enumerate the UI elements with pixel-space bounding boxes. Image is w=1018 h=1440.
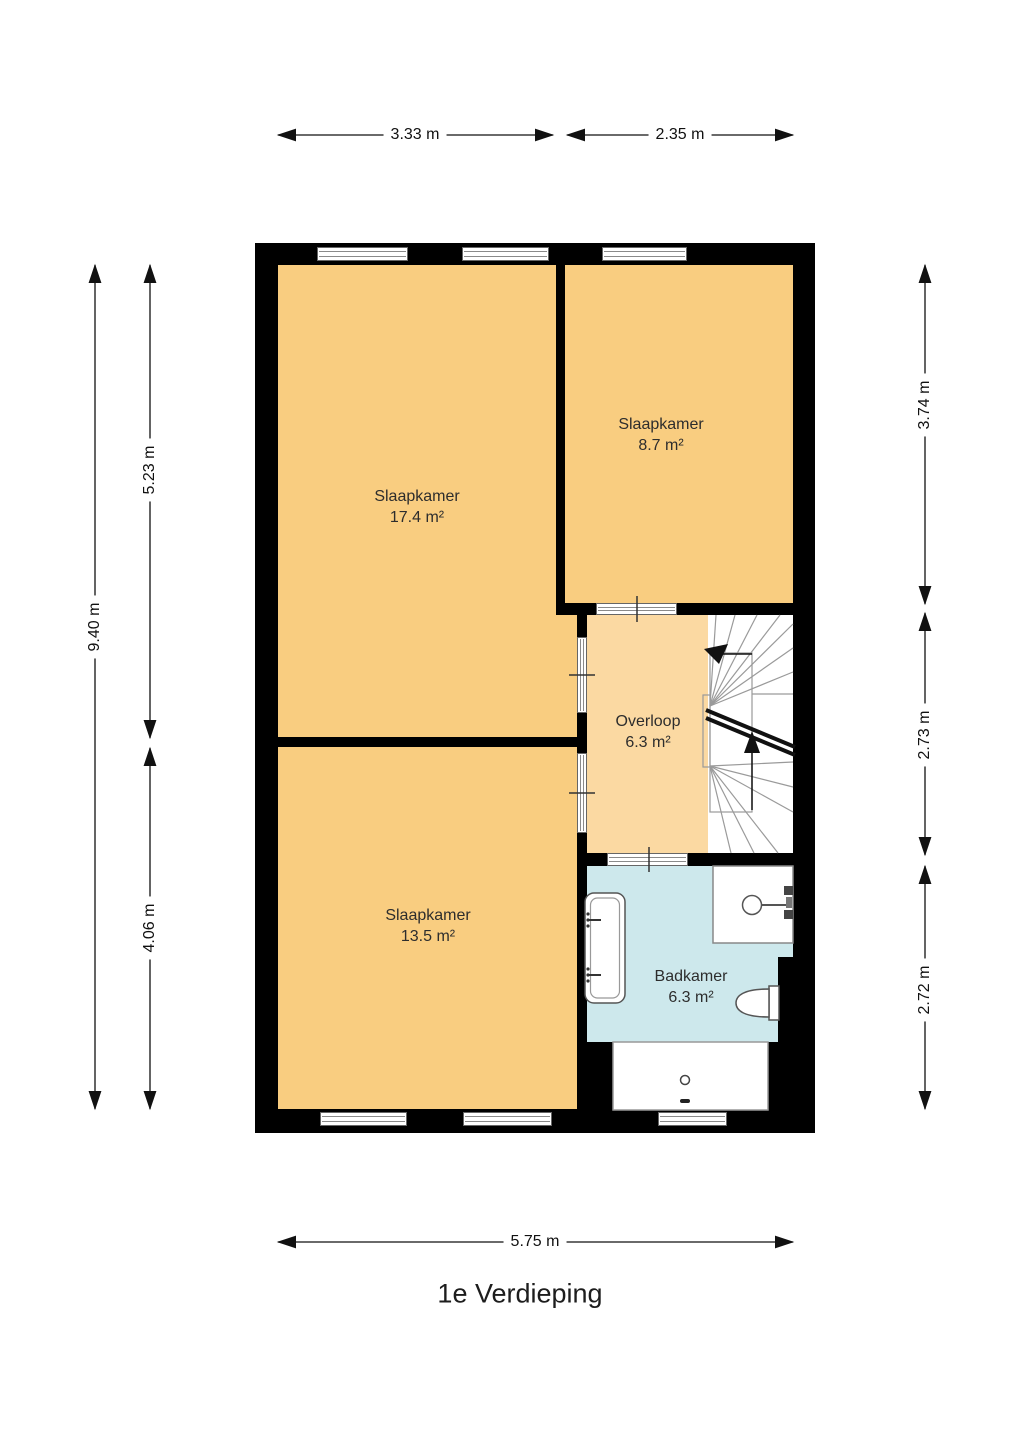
bathtub-faucet-icon xyxy=(680,1099,690,1103)
shower-drain-icon xyxy=(743,896,762,915)
room-label-bathroom: Badkamer 6.3 m² xyxy=(655,966,728,1008)
dimension-right-middle: 2.73 m xyxy=(916,704,934,767)
toilet xyxy=(736,986,779,1020)
room-label-bedroom-large: Slaapkamer 17.4 m² xyxy=(374,486,459,528)
room-name: Slaapkamer xyxy=(374,486,459,507)
dimension-top-right: 2.35 m xyxy=(649,126,712,144)
bathtub-drain-icon xyxy=(681,1076,690,1085)
dimension-top-left: 3.33 m xyxy=(384,126,447,144)
plan-annotations xyxy=(0,0,1018,1440)
room-name: Slaapkamer xyxy=(385,905,470,926)
room-name: Badkamer xyxy=(655,966,728,987)
dimension-right-lower: 2.72 m xyxy=(916,959,934,1022)
page-title: 1e Verdieping xyxy=(437,1279,602,1310)
dimension-left-outer: 9.40 m xyxy=(86,596,104,659)
room-area: 8.7 m² xyxy=(618,435,703,456)
room-area: 6.3 m² xyxy=(655,987,728,1008)
dimension-lines xyxy=(95,135,925,1242)
stairs-left-strip xyxy=(703,695,710,767)
staircase xyxy=(703,615,795,853)
shower-tap-icon xyxy=(784,886,793,895)
room-label-landing: Overloop 6.3 m² xyxy=(616,711,681,753)
room-area: 6.3 m² xyxy=(616,732,681,753)
double-washbasin xyxy=(585,893,625,1003)
room-label-bedroom-bottom: Slaapkamer 13.5 m² xyxy=(385,905,470,947)
dimension-bottom: 5.75 m xyxy=(504,1233,567,1251)
shower xyxy=(713,866,793,943)
room-area: 17.4 m² xyxy=(374,507,459,528)
room-name: Slaapkamer xyxy=(618,414,703,435)
room-area: 13.5 m² xyxy=(385,926,470,947)
floor-plan: Slaapkamer 17.4 m² Slaapkamer 8.7 m² Ove… xyxy=(0,0,1018,1440)
room-label-bedroom-small: Slaapkamer 8.7 m² xyxy=(618,414,703,456)
dimension-left-upper: 5.23 m xyxy=(141,439,159,502)
dimension-left-lower: 4.06 m xyxy=(141,897,159,960)
bathtub xyxy=(613,1042,768,1110)
dimension-right-upper: 3.74 m xyxy=(916,374,934,437)
room-name: Overloop xyxy=(616,711,681,732)
